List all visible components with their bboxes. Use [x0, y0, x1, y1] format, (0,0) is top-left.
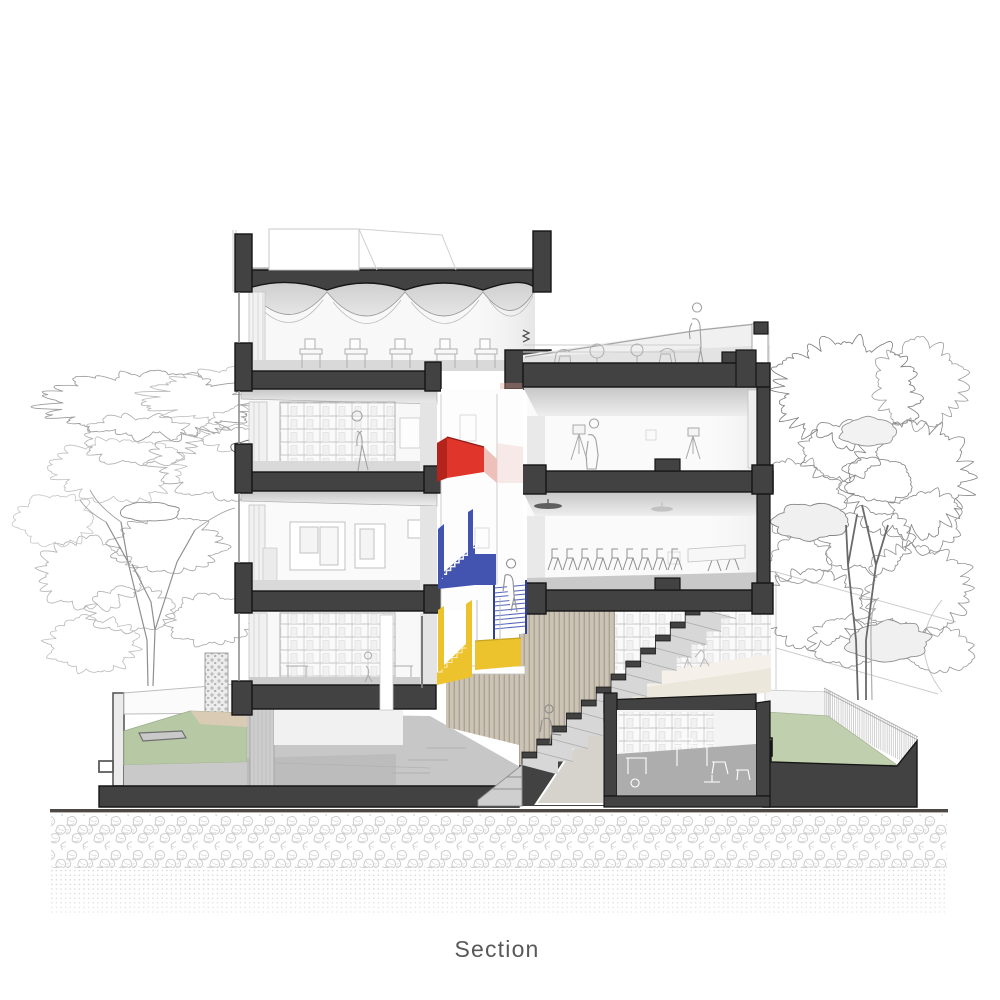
svg-text:Section: Section: [454, 936, 539, 962]
